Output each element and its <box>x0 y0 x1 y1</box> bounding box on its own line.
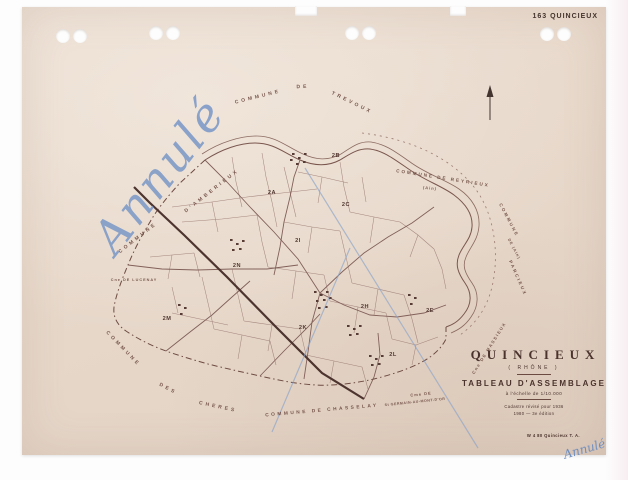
title-doc-type: TABLEAU D'ASSEMBLAGE <box>462 379 606 388</box>
imprint-reference: W 4 80 Quincieux T. A. <box>527 433 580 438</box>
title-divider <box>517 399 551 400</box>
scan-margin <box>606 0 628 480</box>
title-scale: à l'échelle de 1/10.000 <box>462 391 606 396</box>
title-divider <box>517 374 551 375</box>
department-limit-line <box>362 133 495 335</box>
scanned-map-page: 163 QUINCIEUX <box>0 0 628 480</box>
commune-boundary-line <box>114 160 446 385</box>
road-lines <box>128 160 446 399</box>
title-edition: 1980 — 3e édition <box>462 411 606 416</box>
title-revision: Cadastre révisé pour 1936 <box>462 404 606 409</box>
title-block: QUINCIEUX ( RHÔNE ) TABLEAU D'ASSEMBLAGE… <box>462 347 606 416</box>
title-department: ( RHÔNE ) <box>462 365 606 371</box>
railway-line <box>134 187 364 399</box>
settlement-blocks <box>178 153 417 366</box>
parcel-lines <box>150 153 446 389</box>
scanned-sheet: 163 QUINCIEUX <box>22 7 606 455</box>
north-arrow-icon <box>487 85 494 120</box>
title-commune: QUINCIEUX <box>465 347 606 363</box>
